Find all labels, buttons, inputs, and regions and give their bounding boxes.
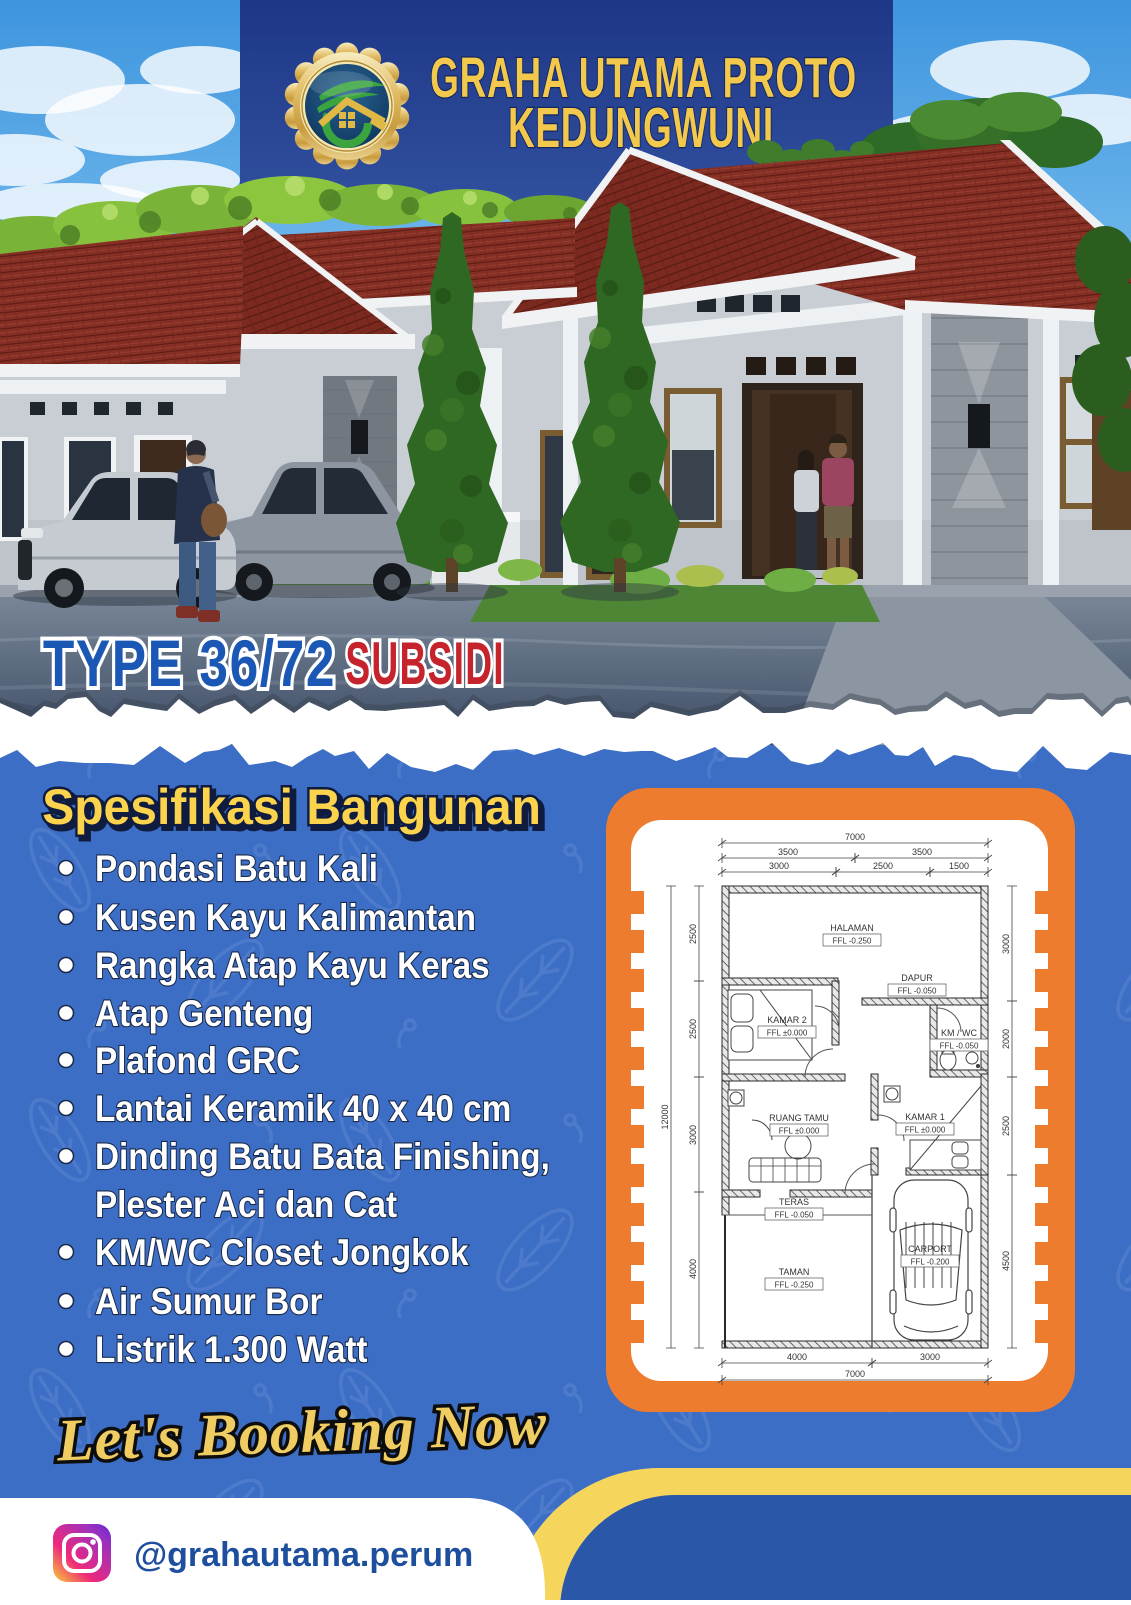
svg-text:3000: 3000 (688, 1125, 698, 1145)
svg-text:2000: 2000 (1001, 1029, 1011, 1049)
svg-text:FFL -0.250: FFL -0.250 (775, 1281, 814, 1290)
svg-text:FFL -0.200: FFL -0.200 (911, 1258, 950, 1267)
svg-text:FFL ±0.000: FFL ±0.000 (779, 1127, 820, 1136)
svg-text:RUANG TAMU: RUANG TAMU (769, 1113, 829, 1123)
svg-text:4000: 4000 (688, 1259, 698, 1279)
svg-text:KAMAR 2: KAMAR 2 (767, 1015, 807, 1025)
svg-text:Spesifikasi Bangunan: Spesifikasi Bangunan (42, 780, 541, 835)
svg-text:FFL ±0.000: FFL ±0.000 (767, 1029, 808, 1038)
svg-text:TYPE 36/72: TYPE 36/72 (43, 626, 336, 701)
svg-text:TAMAN: TAMAN (779, 1267, 810, 1277)
svg-text:HALAMAN: HALAMAN (830, 923, 874, 933)
svg-text:TERAS: TERAS (779, 1197, 809, 1207)
svg-text:2500: 2500 (688, 924, 698, 944)
svg-text:4500: 4500 (1001, 1251, 1011, 1271)
svg-text:3000: 3000 (769, 861, 789, 871)
svg-text:4000: 4000 (787, 1352, 807, 1362)
svg-text:FFL -0.050: FFL -0.050 (775, 1211, 814, 1220)
svg-text:2500: 2500 (873, 861, 893, 871)
svg-text:7000: 7000 (845, 1369, 865, 1379)
svg-text:12000: 12000 (660, 1104, 670, 1129)
svg-text:KEDUNGWUNI: KEDUNGWUNI (508, 96, 774, 160)
svg-text:2500: 2500 (688, 1019, 698, 1039)
svg-text:3500: 3500 (778, 847, 798, 857)
svg-text:7000: 7000 (845, 832, 865, 842)
svg-text:3500: 3500 (912, 847, 932, 857)
svg-text:KM/WC Closet Jongkok: KM/WC Closet Jongkok (95, 1232, 469, 1273)
svg-text:FFL ±0.000: FFL ±0.000 (905, 1126, 946, 1135)
svg-text:FFL -0.050: FFL -0.050 (940, 1042, 979, 1051)
svg-text:Pondasi Batu Kali: Pondasi Batu Kali (95, 848, 378, 889)
svg-text:2500: 2500 (1001, 1116, 1011, 1136)
svg-text:CARPORT: CARPORT (908, 1244, 952, 1254)
svg-text:DAPUR: DAPUR (901, 973, 933, 983)
svg-text:Plafond GRC: Plafond GRC (95, 1040, 300, 1081)
svg-text:Dinding Batu Bata Finishing,: Dinding Batu Bata Finishing, (95, 1136, 550, 1177)
svg-text:@grahautama.perum: @grahautama.perum (134, 1536, 473, 1574)
svg-text:Listrik 1.300 Watt: Listrik 1.300 Watt (95, 1329, 368, 1370)
svg-text:SUBSIDI: SUBSIDI (345, 630, 505, 697)
svg-text:3000: 3000 (920, 1352, 940, 1362)
svg-text:Atap Genteng: Atap Genteng (95, 993, 313, 1034)
svg-text:FFL -0.050: FFL -0.050 (898, 987, 937, 996)
svg-text:Plester Aci dan Cat: Plester Aci dan Cat (95, 1184, 397, 1225)
svg-text:FFL -0.250: FFL -0.250 (833, 937, 872, 946)
svg-text:Lantai Keramik 40 x 40 cm: Lantai Keramik 40 x 40 cm (95, 1088, 511, 1129)
svg-text:Kusen Kayu Kalimantan: Kusen Kayu Kalimantan (95, 897, 476, 938)
svg-text:1500: 1500 (949, 861, 969, 871)
svg-text:Rangka Atap Kayu Keras: Rangka Atap Kayu Keras (95, 945, 490, 986)
svg-text:3000: 3000 (1001, 934, 1011, 954)
svg-text:KM / WC: KM / WC (941, 1028, 977, 1038)
svg-text:KAMAR 1: KAMAR 1 (905, 1112, 945, 1122)
svg-text:Air Sumur Bor: Air Sumur Bor (95, 1281, 323, 1322)
